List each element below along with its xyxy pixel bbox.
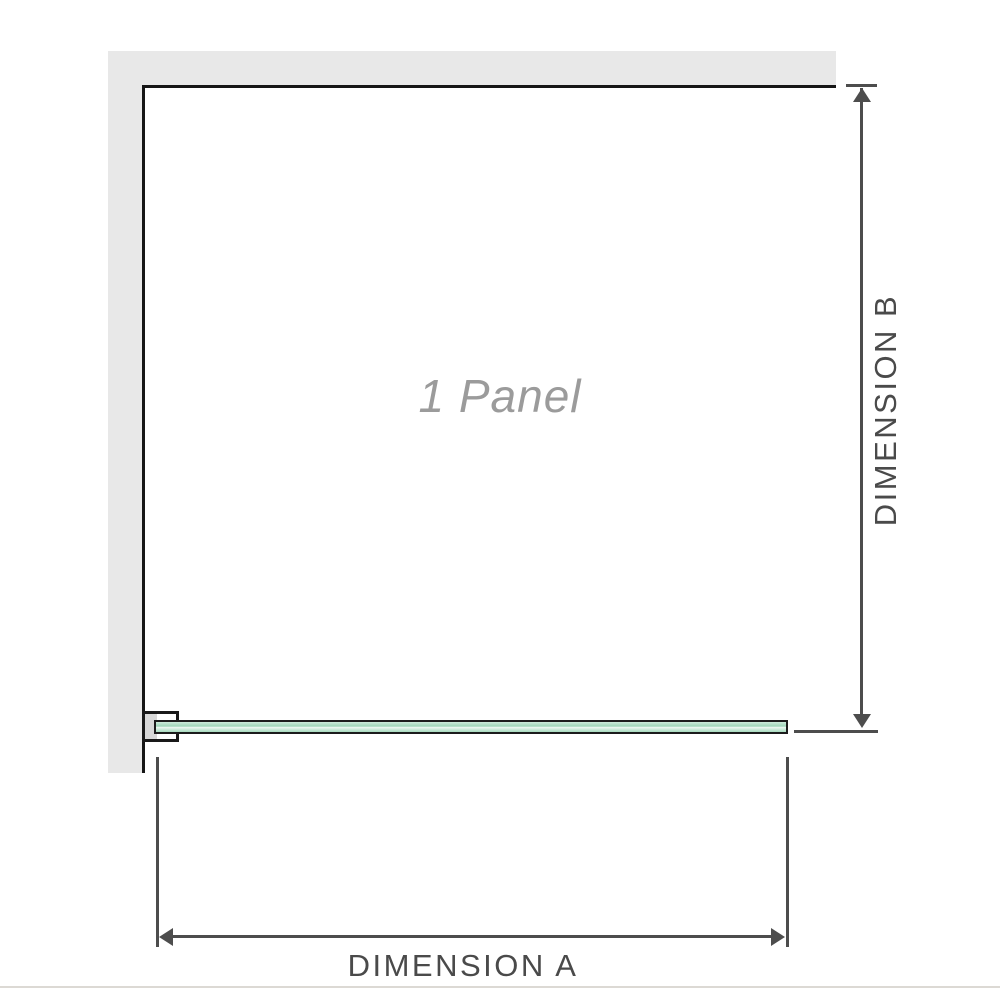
dimension-a-left-extension bbox=[156, 757, 159, 947]
dimension-a-line bbox=[164, 935, 778, 938]
arrow-right-icon bbox=[771, 928, 785, 946]
panel-top-edge-line bbox=[142, 85, 836, 88]
dimension-b-top-tick bbox=[846, 84, 877, 87]
panel-left-edge-line bbox=[142, 85, 145, 773]
dimension-b-line bbox=[860, 88, 863, 718]
wall-band-top bbox=[108, 51, 836, 85]
wall-band-left bbox=[108, 51, 142, 773]
panel-count-label: 1 Panel bbox=[418, 369, 581, 423]
arrow-up-icon bbox=[853, 88, 871, 102]
shower-panel-dimension-diagram: 1 Panel DIMENSION B DIMENSION A bbox=[0, 0, 1000, 1000]
bottom-divider-line bbox=[0, 986, 1000, 988]
glass-panel-bar bbox=[154, 720, 788, 734]
dimension-a-label: DIMENSION A bbox=[150, 948, 776, 984]
dimension-b-bottom-tick bbox=[794, 730, 878, 733]
dimension-a-right-extension bbox=[786, 757, 789, 947]
dimension-b-label: DIMENSION B bbox=[868, 294, 904, 526]
arrow-down-icon bbox=[853, 714, 871, 728]
arrow-left-icon bbox=[159, 928, 173, 946]
